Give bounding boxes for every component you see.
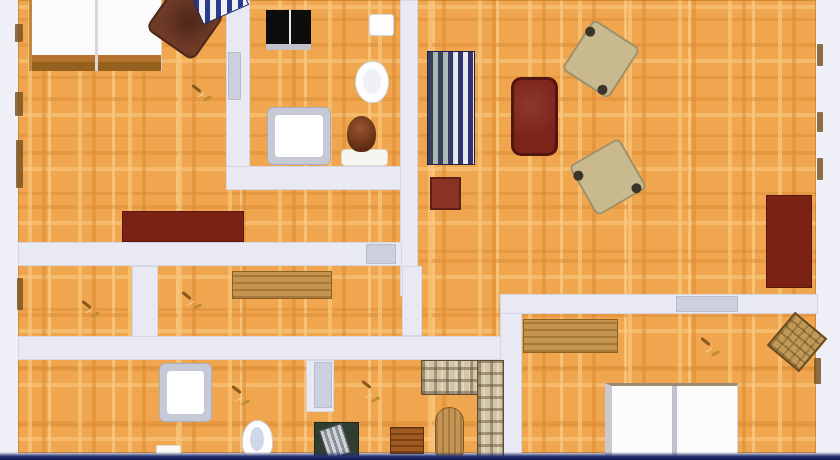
door-handle-icon — [180, 291, 202, 310]
stove-black — [266, 10, 311, 50]
plant-vase — [347, 116, 376, 152]
double-bed-top-left — [29, 0, 162, 71]
wall-central-vertical — [400, 0, 418, 296]
corridor — [422, 266, 500, 336]
dresser-dark-red — [122, 211, 244, 242]
room-bottom-left — [18, 360, 132, 455]
wall-central-stub — [402, 266, 422, 336]
window-left-4 — [17, 278, 23, 310]
door-bathroom-bottom — [314, 362, 332, 408]
shower-tray-bottom — [159, 363, 212, 422]
wall-mid-horizontal — [18, 336, 522, 360]
floor-plan-canvas — [0, 0, 840, 460]
door-handle-icon — [699, 337, 720, 357]
sideboard-wooden — [523, 319, 618, 353]
corner-sofa-plaid-vertical — [477, 360, 504, 460]
toilet — [355, 61, 389, 103]
door-handle-icon — [80, 300, 100, 318]
shower-tray-top — [267, 107, 331, 165]
door-handle-icon — [360, 380, 380, 403]
window-left-2 — [15, 92, 23, 116]
wall-bottom-bedroom-top — [500, 294, 818, 314]
wardrobe-dark-red — [766, 195, 812, 288]
window-left-1 — [15, 24, 23, 42]
window-right-1 — [817, 44, 823, 66]
sink-small — [369, 14, 394, 36]
wall-bathroom-bottom — [226, 166, 418, 190]
double-bed-bottom-right — [605, 383, 738, 460]
door-bathroom-top — [228, 52, 241, 100]
room-small-left — [18, 266, 132, 336]
door-bedroom-top-left — [366, 244, 396, 264]
door-bedroom-bottom-right — [676, 296, 738, 312]
window-right-4 — [814, 358, 821, 384]
window-right-3 — [817, 158, 823, 180]
door-handle-icon — [190, 84, 212, 102]
door-handle-icon — [230, 385, 250, 406]
side-table-red — [430, 177, 461, 210]
wall-bedroom-bottom — [18, 242, 402, 266]
crate-wooden — [390, 427, 424, 454]
sofa-striped-blue — [427, 51, 475, 165]
window-left-3 — [16, 140, 23, 188]
sofa-dark-red — [511, 77, 558, 156]
desk-wooden — [232, 271, 332, 299]
photo-bottom-edge — [0, 452, 840, 460]
window-right-2 — [817, 112, 823, 132]
